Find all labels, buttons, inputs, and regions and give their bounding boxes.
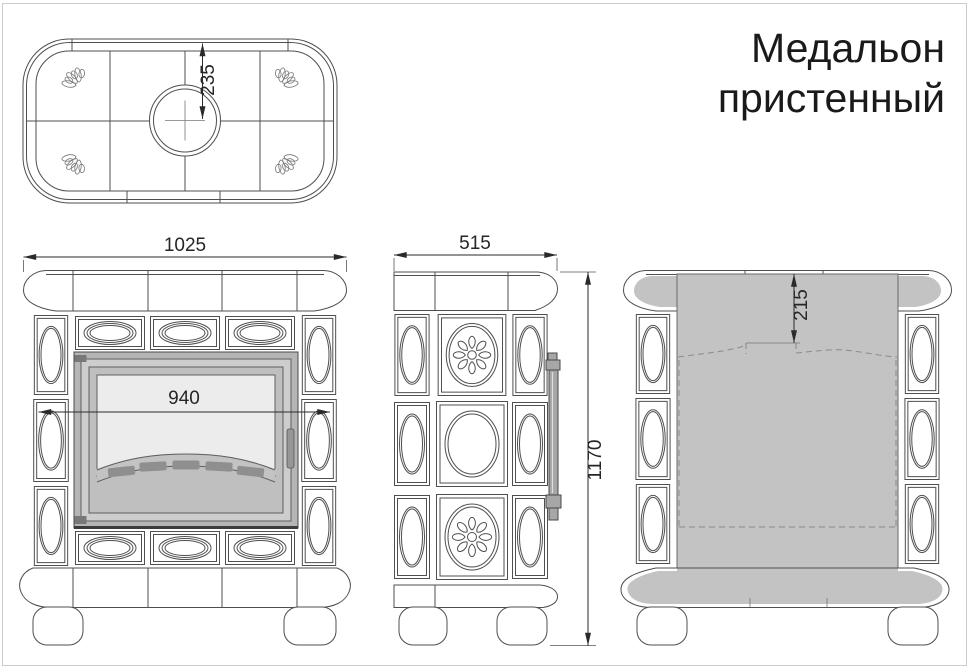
front-left-column (34, 315, 69, 565)
side-left-column (395, 314, 430, 578)
tile-oval-vertical (34, 486, 67, 565)
tile-oval-vertical (302, 315, 335, 394)
firebox-door (74, 352, 298, 528)
tile-circle (437, 402, 508, 487)
rear-base (621, 568, 949, 608)
door-hinge-top (75, 355, 87, 362)
door-hinge-bottom (75, 516, 87, 524)
rear-right-column (905, 314, 939, 563)
tile-oval-horizontal (226, 532, 295, 565)
drawing-page: 235 (0, 0, 970, 669)
tile-oval-horizontal (226, 317, 295, 350)
tile-oval-vertical (636, 398, 670, 479)
tile-oval-vertical (905, 398, 939, 479)
tile-oval-vertical (34, 315, 67, 394)
tile-oval-horizontal (76, 532, 145, 565)
tile-oval-horizontal (76, 317, 145, 350)
side-foot-right (497, 607, 547, 645)
front-cornice (24, 271, 347, 312)
tile-oval-vertical (513, 403, 548, 486)
tile-oval-horizontal (151, 532, 220, 565)
tile-oval-vertical (905, 314, 938, 393)
front-foot-right (284, 607, 336, 645)
dim-label-235: 235 (198, 64, 219, 96)
rear-left-column (636, 314, 670, 563)
rear-heat-panel (677, 274, 898, 605)
side-right-column (513, 314, 548, 578)
dim-depth: 515 (394, 233, 557, 271)
dim-label-940: 940 (168, 388, 200, 409)
dim-label-1170: 1170 (585, 440, 606, 481)
side-cornice (394, 272, 558, 311)
title-line-2: пристенный (718, 75, 945, 121)
door-frame-profile (546, 353, 561, 520)
technical-drawing: 235 (0, 0, 970, 669)
tile-oval-vertical (395, 403, 430, 486)
rear-foot-left (637, 607, 687, 645)
front-foot-left (33, 607, 83, 645)
rear-foot-right (888, 607, 938, 645)
front-top-row (76, 317, 295, 350)
side-center-column (437, 314, 508, 579)
side-foot-left (399, 607, 447, 645)
front-base (20, 568, 351, 608)
side-base (394, 585, 558, 608)
dim-label-515: 515 (459, 233, 491, 254)
tile-oval-vertical (302, 486, 335, 565)
rear-view: 215 (621, 271, 952, 646)
dim-overall-width: 1025 (24, 235, 347, 272)
front-view: 1025 940 (20, 235, 351, 645)
tile-oval-vertical (636, 314, 669, 393)
top-view: 235 (23, 39, 337, 203)
tile-oval-vertical (513, 496, 548, 579)
door-handle (287, 429, 294, 468)
side-view: 515 1170 (394, 233, 606, 646)
front-bottom-row (76, 532, 295, 565)
dim-label-1025: 1025 (164, 235, 206, 256)
drawing-title: Медальон пристенный (718, 25, 945, 121)
tile-oval-vertical (395, 496, 430, 579)
tile-oval-vertical (513, 314, 547, 395)
tile-oval-vertical (395, 314, 429, 395)
tile-rosette (437, 495, 508, 580)
tile-oval-horizontal (151, 317, 220, 350)
dim-label-215: 215 (791, 289, 812, 321)
title-line-1: Медальон (751, 25, 945, 71)
tile-oval-vertical (636, 484, 669, 563)
tile-rosette (438, 314, 506, 395)
tile-oval-vertical (905, 484, 938, 563)
front-right-column (302, 315, 337, 565)
